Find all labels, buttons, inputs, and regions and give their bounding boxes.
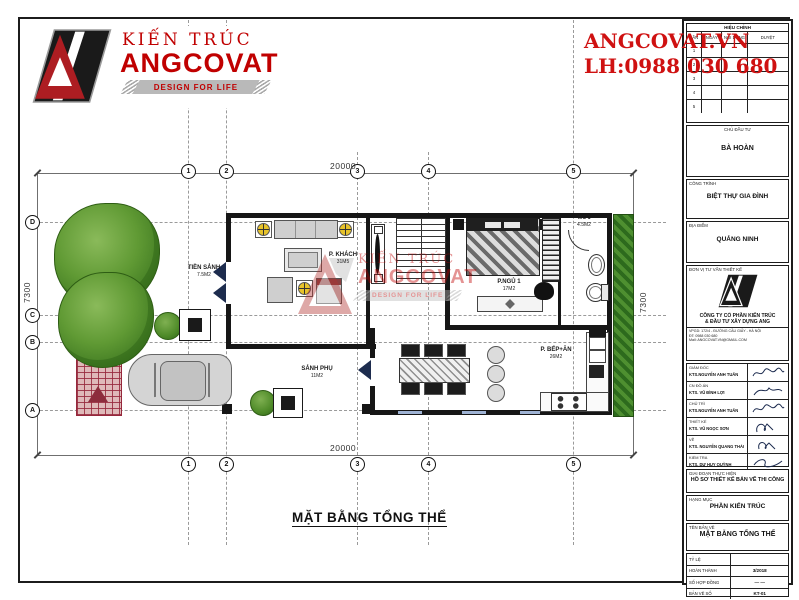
- room-label-living: P. KHÁCH 31M5: [316, 252, 370, 265]
- room-label-kitchen: P. BẾP+ĂN 26M2: [528, 347, 584, 360]
- category-label: HẠNG MỤC: [687, 496, 788, 503]
- signature-icon: [748, 364, 788, 381]
- title-block: HIỆU CHỈNH LẦN NGÀY NỘI DUNG DUYỆT 1 2 3…: [682, 19, 793, 585]
- grid-bubble-row-b: B: [25, 335, 40, 350]
- brand-tagline-banner: DESIGN FOR LIFE: [122, 80, 269, 94]
- dim-line-top: [37, 173, 633, 174]
- grid-bubble-top-1: 1: [181, 164, 196, 179]
- signature-table: GIÁM ĐỐCKTS.NGUYỄN ANH TUẤN CN ĐỒ ÁNKTS.…: [686, 363, 789, 467]
- dining-chair: [447, 344, 466, 357]
- room-label-porch: TIỀN SẢNH 7.5M2: [182, 265, 226, 278]
- sofa: [274, 220, 338, 239]
- planter: [179, 309, 211, 341]
- watermark-tagline: DESIGN FOR LIFE: [372, 292, 443, 299]
- phase-label: GIAI ĐOẠN THỰC HIỆN: [687, 470, 788, 477]
- signature-icon: [748, 382, 788, 399]
- plant-pot: [255, 221, 272, 238]
- meta-label: BẢN VẼ SỐ: [687, 589, 731, 600]
- shrub: [154, 312, 182, 340]
- sig-role: KIỂM TRA: [689, 455, 745, 460]
- grid-bubble-bot-4: 4: [421, 457, 436, 472]
- brand-tagline: DESIGN FOR LIFE: [154, 83, 238, 92]
- drawing-sheet: KIẾN TRÚC ANGCOVAT DESIGN FOR LIFE ANGCO…: [0, 0, 799, 600]
- project-label: CÔNG TRÌNH: [687, 180, 788, 187]
- sig-name: KTS. VŨ ĐÌNH LỢI: [689, 390, 745, 395]
- grid-bubble-row-a: A: [25, 403, 40, 418]
- consultant-section: ĐƠN VỊ TƯ VẤN THIẾT KẾ CÔNG TY CỔ PHẦN K…: [686, 265, 789, 361]
- hedge: [613, 214, 634, 417]
- room-label-side-hall: SẢNH PHỤ 11M2: [294, 366, 340, 379]
- dining-chair: [424, 382, 443, 395]
- owner-value: BÀ HOÀN: [687, 145, 788, 152]
- watermark-line2: ANGCOVAT: [358, 267, 477, 287]
- toilet-tank: [601, 284, 609, 301]
- phone-text: LH:0988 030 680: [584, 54, 777, 79]
- sig-role: CHỦ TRÌ: [689, 401, 745, 406]
- kitchen-sink: [589, 337, 606, 350]
- fridge-top: [589, 329, 606, 337]
- desk-chair: [534, 282, 554, 300]
- grid-bubble-top-2: 2: [219, 164, 234, 179]
- grid-bubble-row-c: C: [25, 308, 40, 323]
- dining-chair: [401, 382, 420, 395]
- sig-name: KTS.NGUYỄN ANH TUẤN: [689, 408, 745, 413]
- plant-pot: [337, 221, 354, 238]
- revision-row-num: 5: [687, 100, 702, 113]
- room-label-bedroom: P.NGỦ 1 17M2: [484, 279, 534, 292]
- owner-label: CHỦ ĐẦU TƯ: [687, 126, 788, 133]
- grid-bubble-bot-2: 2: [219, 457, 234, 472]
- grid-bubble-top-4: 4: [421, 164, 436, 179]
- stool: [487, 365, 505, 383]
- watermark-banner: DESIGN FOR LIFE: [355, 290, 461, 301]
- meta-label: TỶ LỆ: [687, 554, 731, 565]
- meta-table: TỶ LỆ HOÀN THÀNH 3/2018 SỐ HỢP ĐỒNG — — …: [686, 553, 789, 597]
- kitchen-sink: [589, 350, 606, 363]
- sig-name: KTS. VŨ NGỌC SƠN: [689, 426, 745, 431]
- meta-label: HOÀN THÀNH: [687, 566, 731, 577]
- sig-role: VẼ: [689, 437, 745, 442]
- dim-top-value: 20000: [330, 161, 356, 171]
- bed-pillows: [466, 218, 538, 231]
- kitchen-door-leaf: [358, 360, 371, 380]
- brick-arrow: [88, 386, 108, 402]
- phase-value: HỒ SƠ THIẾT KẾ BẢN VẼ THI CÔNG: [687, 477, 788, 483]
- grid-bubble-top-5: 5: [566, 164, 581, 179]
- signature-icon: [748, 400, 788, 417]
- signature-icon: [748, 418, 788, 435]
- watermark-line1: KIẾN TRÚC: [358, 252, 477, 267]
- wardrobe: [542, 218, 560, 282]
- sig-role: GIÁM ĐỐC: [689, 365, 745, 370]
- grid-bubble-bot-3: 3: [350, 457, 365, 472]
- owner-section: CHỦ ĐẦU TƯ BÀ HOÀN: [686, 125, 789, 177]
- signature-icon: [748, 436, 788, 453]
- consultant-label: ĐƠN VỊ TƯ VẤN THIẾT KẾ: [687, 266, 788, 273]
- grid-bubble-bot-1: 1: [181, 457, 196, 472]
- contact-block: ANGCOVAT.VN LH:0988 030 680: [584, 29, 777, 79]
- meta-label: SỐ HỢP ĐỒNG: [687, 577, 731, 588]
- window: [462, 411, 486, 414]
- sig-role: THIẾT KẾ: [689, 419, 745, 424]
- window: [520, 411, 540, 414]
- sig-name: KTS. NGUYỄN QUANG THÁI: [689, 444, 745, 449]
- category-section: HẠNG MỤC PHẦN KIẾN TRÚC: [686, 495, 789, 521]
- company-address-3: Mail: ANGCOVAT.VN@GMAIL.COM: [689, 338, 786, 343]
- room-label-wc: WC 1 4.5M2: [564, 215, 604, 228]
- sig-name: KTS.NGUYỄN ANH TUẤN: [689, 372, 745, 377]
- location-section: ĐỊA ĐIỂM QUẢNG NINH: [686, 221, 789, 263]
- stool: [487, 384, 505, 402]
- grid-bubble-row-d: D: [25, 215, 40, 230]
- website-text: ANGCOVAT.VN: [584, 29, 777, 54]
- meta-value: [731, 554, 788, 565]
- sig-name: KTS. DƯ HUY QUỲNH: [689, 462, 745, 467]
- car: [128, 354, 232, 406]
- dim-bottom-value: 20000: [330, 443, 356, 453]
- nightstand: [453, 219, 464, 230]
- meta-value: 3/2018: [731, 566, 788, 577]
- dim-right-value: 7300: [638, 292, 648, 313]
- watermark: KIẾN TRÚC ANGCOVAT DESIGN FOR LIFE: [296, 252, 491, 340]
- window: [398, 411, 422, 414]
- sink: [588, 254, 605, 276]
- project-value: BIỆT THỰ GIA ĐÌNH: [687, 193, 788, 200]
- angcovat-logo-icon: [32, 28, 112, 109]
- dining-chair: [401, 344, 420, 357]
- dim-left-value: 7300: [22, 282, 32, 303]
- brand-line1: KIẾN TRÚC: [122, 30, 253, 50]
- grid-bubble-bot-5: 5: [566, 457, 581, 472]
- consultant-logo-icon: [687, 274, 788, 313]
- entrance-opening: [225, 262, 232, 304]
- revision-row-num: 4: [687, 86, 702, 99]
- stove: [551, 393, 587, 411]
- column: [362, 404, 372, 414]
- location-label: ĐỊA ĐIỂM: [687, 222, 788, 229]
- drawing-name-value: MẶT BẰNG TỔNG THỂ: [687, 531, 788, 538]
- wall-bottom-living: [226, 344, 376, 349]
- brand-line2: ANGCOVAT: [120, 50, 279, 76]
- dining-chair: [424, 344, 443, 357]
- fridge: [589, 365, 604, 378]
- company-line2: & ĐẦU TƯ XÂY DỰNG ANG: [687, 319, 788, 325]
- dining-table: [399, 358, 470, 383]
- entrance-door-leaf: [213, 283, 226, 303]
- dining-chair: [447, 382, 466, 395]
- drawing-name-section: TÊN BẢN VẼ MẶT BẰNG TỔNG THỂ: [686, 523, 789, 551]
- category-value: PHẦN KIẾN TRÚC: [687, 503, 788, 510]
- planter: [273, 388, 303, 418]
- meta-value: KT-01: [731, 589, 788, 600]
- dim-line-bottom: [37, 455, 633, 456]
- plan-title: MẶT BẰNG TỔNG THỂ: [292, 510, 447, 527]
- phase-section: GIAI ĐOẠN THỰC HIỆN HỒ SƠ THIẾT KẾ BẢN V…: [686, 469, 789, 493]
- project-section: CÔNG TRÌNH BIỆT THỰ GIA ĐÌNH: [686, 179, 789, 219]
- drawing-name-label: TÊN BẢN VẼ: [687, 524, 788, 531]
- brand-logo: KIẾN TRÚC ANGCOVAT DESIGN FOR LIFE: [30, 26, 290, 108]
- meta-value: — —: [731, 577, 788, 588]
- location-value: QUẢNG NINH: [687, 236, 788, 243]
- stool: [487, 346, 505, 364]
- armchair: [267, 277, 293, 303]
- sig-role: CN ĐỒ ÁN: [689, 383, 745, 388]
